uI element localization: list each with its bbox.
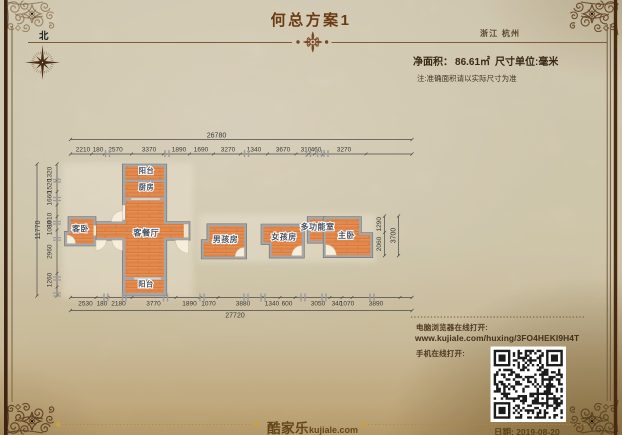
svg-text:女孩房: 女孩房 (271, 231, 297, 241)
svg-text:3880: 3880 (236, 301, 251, 308)
svg-text:180: 180 (93, 147, 104, 154)
svg-text:1290: 1290 (376, 217, 383, 232)
svg-text:多功能室: 多功能室 (301, 221, 335, 231)
svg-text:3270: 3270 (337, 147, 352, 154)
svg-text:27720: 27720 (225, 313, 245, 320)
svg-text:2180: 2180 (111, 301, 126, 308)
svg-text:客餐厅: 客餐厅 (132, 227, 159, 237)
svg-text:1070: 1070 (340, 301, 355, 308)
svg-text:1520: 1520 (47, 178, 54, 193)
svg-text:3050: 3050 (311, 301, 326, 308)
svg-text:2570: 2570 (108, 147, 123, 154)
svg-text:1890: 1890 (172, 147, 187, 154)
svg-text:3890: 3890 (369, 301, 384, 308)
svg-text:1260: 1260 (47, 272, 54, 287)
svg-text:1690: 1690 (194, 147, 209, 154)
svg-text:1340: 1340 (265, 301, 280, 308)
svg-text:主卧: 主卧 (338, 230, 355, 240)
svg-text:阳台: 阳台 (139, 166, 154, 175)
svg-text:阳台: 阳台 (138, 279, 153, 288)
svg-text:男孩房: 男孩房 (213, 234, 239, 244)
svg-text:3370: 3370 (142, 147, 157, 154)
svg-text:2960: 2960 (47, 244, 54, 259)
svg-text:客卧: 客卧 (71, 223, 89, 233)
svg-text:2530: 2530 (78, 301, 93, 308)
svg-text:2210: 2210 (76, 147, 91, 154)
svg-text:1890: 1890 (182, 301, 197, 308)
svg-text:26780: 26780 (207, 133, 227, 140)
svg-text:600: 600 (282, 301, 293, 308)
svg-text:1080: 1080 (47, 220, 54, 235)
svg-text:3670: 3670 (276, 147, 291, 154)
svg-text:2060: 2060 (376, 236, 383, 251)
svg-text:3270: 3270 (221, 147, 236, 154)
svg-text:11770: 11770 (35, 220, 42, 239)
svg-text:3770: 3770 (146, 301, 161, 308)
svg-text:3700: 3700 (391, 228, 398, 244)
svg-text:1660: 1660 (47, 191, 54, 206)
svg-text:1070: 1070 (201, 301, 216, 308)
svg-text:厨房: 厨房 (139, 182, 154, 191)
svg-text:460: 460 (311, 147, 322, 154)
svg-text:180: 180 (97, 301, 108, 308)
